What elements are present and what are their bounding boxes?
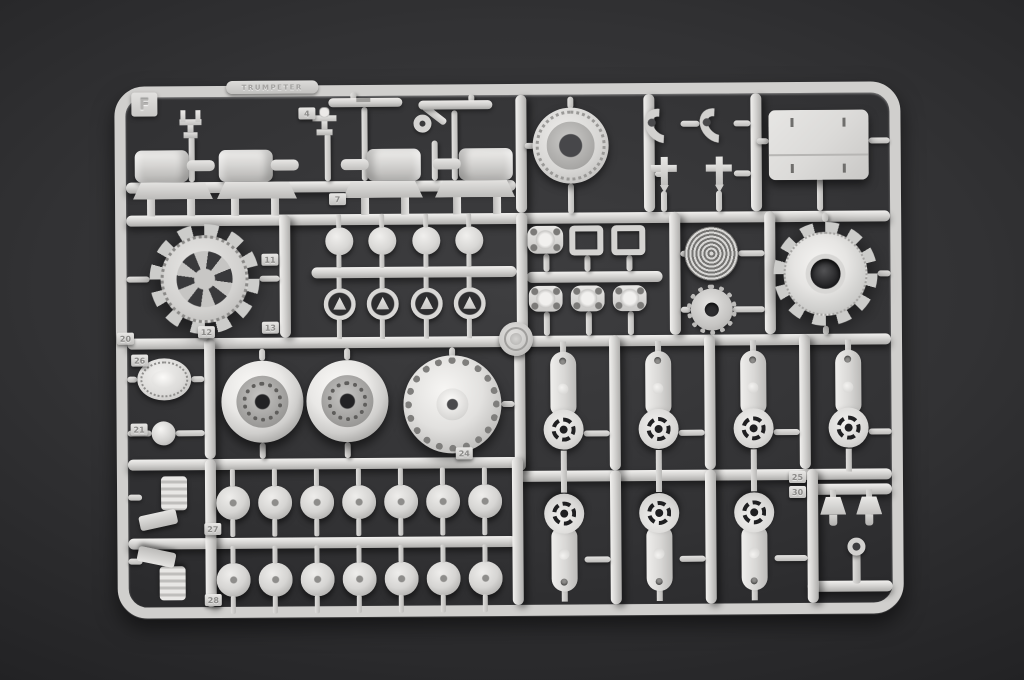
sprue-gate	[584, 255, 590, 271]
axle-stub	[271, 159, 299, 170]
ring-hub	[462, 295, 478, 311]
sprue-gate	[259, 349, 265, 361]
suspension-swing-arm-part	[826, 350, 871, 450]
runner-segment	[609, 335, 621, 470]
part-number-tab: 25	[789, 471, 806, 483]
sprue-gate	[733, 120, 750, 126]
runner-segment	[799, 334, 811, 469]
part-number-tab: 11	[261, 254, 278, 266]
arm-body	[645, 351, 671, 415]
part-number-tab: 7	[329, 193, 346, 205]
sprue-gate	[716, 191, 722, 212]
hull-clamp-part	[177, 110, 203, 138]
arm-hub	[828, 408, 868, 448]
arm-body	[550, 352, 576, 416]
runner-segment	[311, 266, 516, 278]
runner-segment	[279, 215, 291, 338]
arm-hub	[543, 410, 583, 450]
funnel-bucket-part	[855, 489, 883, 529]
arm-hub	[638, 409, 678, 449]
dished-road-wheel-part	[306, 360, 389, 443]
cylinder-mount-part	[337, 147, 425, 216]
sprue-gate	[775, 555, 808, 561]
runner-segment	[669, 212, 681, 335]
arm-hub	[733, 408, 773, 448]
hub-cap-part	[385, 562, 419, 596]
part-number-tab: 12	[198, 326, 215, 338]
sprue-letter-tab: F	[131, 92, 157, 116]
arm-body	[646, 527, 672, 591]
oval-mounting-plate-part	[613, 285, 647, 311]
sprue-gate	[584, 430, 610, 436]
suspension-swing-arm-part	[637, 491, 682, 591]
valve-fitting-stem	[852, 552, 860, 584]
sprue-gate	[586, 311, 592, 335]
sprue-gate	[738, 250, 764, 256]
hub-cap-part	[342, 485, 376, 519]
shock-absorber-part	[137, 542, 193, 600]
ring-hub	[332, 296, 348, 312]
hub-cap-part	[469, 561, 503, 595]
arm-hub	[639, 493, 679, 533]
cylinder-mount-part	[131, 148, 219, 217]
ball-joint-part	[152, 421, 176, 445]
suspension-swing-arm-part	[541, 351, 586, 451]
hub-cap-part	[468, 484, 502, 518]
cylindrical-rod-part	[328, 98, 402, 108]
t-bracket-part	[649, 157, 679, 193]
sprue-gate	[176, 430, 205, 436]
sprue-gate	[734, 170, 751, 176]
sprue-gate	[823, 326, 829, 335]
brand-plate: TRUMPETER	[226, 80, 318, 94]
arm-hub	[734, 492, 774, 532]
material-stamp-medallion	[499, 322, 533, 356]
sprue-gate	[585, 556, 611, 562]
hub-cap-part	[217, 563, 251, 597]
part-number-tab: 26	[131, 355, 148, 367]
suspension-swing-arm-part	[731, 350, 776, 450]
axle-stub	[433, 158, 461, 169]
hub-cap-part	[427, 561, 461, 595]
part-number-tab: 20	[117, 333, 134, 345]
sprue-gate	[822, 213, 828, 222]
part-number-tab: 24	[456, 447, 473, 459]
part-number-tab: 4	[298, 107, 315, 119]
oval-mounting-plate-part	[529, 286, 563, 312]
suspension-swing-arm-part	[542, 491, 587, 591]
ring-retainer-part	[411, 287, 443, 319]
final-drive-housing-part	[403, 355, 502, 454]
round-cap-disc-part	[455, 226, 483, 254]
hub-cap-part	[343, 562, 377, 596]
sprue-gate	[817, 178, 823, 211]
arm-body	[835, 350, 861, 414]
runner-segment	[807, 469, 819, 603]
round-cap-disc-part	[412, 226, 440, 254]
sprue-gate	[774, 429, 800, 435]
runner-segment	[527, 271, 663, 283]
shock-absorber-part	[139, 476, 195, 534]
hub-cap-part	[384, 485, 418, 519]
runner-segment	[512, 457, 524, 605]
ring-retainer-part	[454, 287, 486, 319]
hub-cap-part	[258, 486, 292, 520]
arm-body	[551, 528, 577, 592]
round-engine-grille-part	[684, 226, 738, 280]
hub-cap-part	[426, 484, 460, 518]
domed-drive-sprocket-part	[773, 221, 878, 326]
cylinder-mount-part	[215, 147, 303, 216]
sprue-gate	[628, 311, 634, 335]
sprue-gate	[260, 276, 280, 282]
sprue-gate	[325, 133, 331, 181]
ring-hub	[375, 296, 391, 312]
hub-cap-part	[259, 563, 293, 597]
part-number-tab: 21	[131, 424, 148, 436]
runner-segment	[750, 93, 762, 211]
runner-segment	[514, 336, 526, 471]
sprue-gate	[680, 556, 706, 562]
arm-body	[741, 526, 767, 590]
flat-roof-plate-part	[768, 110, 868, 181]
runner-segment	[705, 470, 717, 604]
sprue-gate	[568, 184, 574, 214]
runner-segment	[808, 580, 893, 592]
sprue-gate	[733, 306, 765, 312]
sprue-gate	[191, 376, 204, 382]
runner-segment	[204, 338, 216, 459]
sprue-gate	[501, 401, 514, 407]
arm-hub	[544, 494, 584, 534]
hub-cap-part	[300, 485, 334, 519]
rectangular-frame-part	[569, 225, 603, 255]
suspension-swing-arm-part	[636, 351, 681, 451]
t-bracket-part	[704, 156, 734, 192]
hull-clamp-part	[312, 107, 336, 135]
part-number-tab: 27	[204, 523, 221, 535]
part-number-tab: 13	[262, 322, 279, 334]
ring-hub	[419, 296, 435, 312]
photo-background: TRUMPETER F	[0, 0, 1024, 680]
splined-hub-part	[691, 288, 733, 330]
sprue-gate	[127, 277, 150, 283]
sprue-gate	[127, 377, 137, 383]
part-number-tab: 28	[205, 594, 222, 606]
rectangular-frame-part	[611, 225, 645, 255]
sprue-gate	[757, 138, 769, 144]
sprue-gate	[869, 428, 892, 434]
sprue-gate	[869, 137, 890, 143]
sprue-gate	[543, 254, 549, 272]
runner-segment	[704, 335, 716, 470]
oval-mounting-plate-part	[527, 226, 563, 254]
round-cap-disc-part	[368, 227, 396, 255]
axle-stub	[341, 159, 369, 170]
sprue-gate	[345, 442, 351, 458]
runner-segment	[515, 95, 527, 213]
valve-fitting-part	[847, 538, 865, 556]
sprue-gate	[344, 348, 350, 360]
idler-wheel-hub-part	[532, 107, 609, 184]
sprue-gate	[260, 443, 266, 459]
sprue-gate	[661, 191, 667, 212]
dished-road-wheel-part	[221, 360, 304, 443]
arm-body	[740, 350, 766, 414]
part-number-tab: 30	[789, 486, 806, 498]
spoked-drive-sprocket-part	[149, 224, 260, 335]
suspension-swing-arm-part	[732, 490, 777, 590]
sprue-gate	[679, 430, 705, 436]
sprue-gate	[680, 121, 699, 127]
hub-cap-part	[216, 486, 250, 520]
cylindrical-rod-part	[418, 100, 492, 110]
hub-cap-part	[301, 562, 335, 596]
runner-segment	[610, 470, 622, 604]
sprue-assembly: TRUMPETER F	[0, 0, 1024, 680]
cylinder-mount-part	[429, 146, 517, 215]
sprue-gate	[544, 312, 550, 336]
round-cap-disc-part	[325, 227, 353, 255]
sprue-gate	[626, 255, 632, 271]
funnel-bucket-part	[819, 490, 847, 530]
oval-mounting-plate-part	[571, 285, 605, 311]
runner-segment	[516, 213, 528, 336]
axle-stub	[187, 160, 215, 171]
ring-retainer-part	[367, 288, 399, 320]
sprue-gate	[878, 270, 891, 276]
ring-retainer-part	[324, 288, 356, 320]
